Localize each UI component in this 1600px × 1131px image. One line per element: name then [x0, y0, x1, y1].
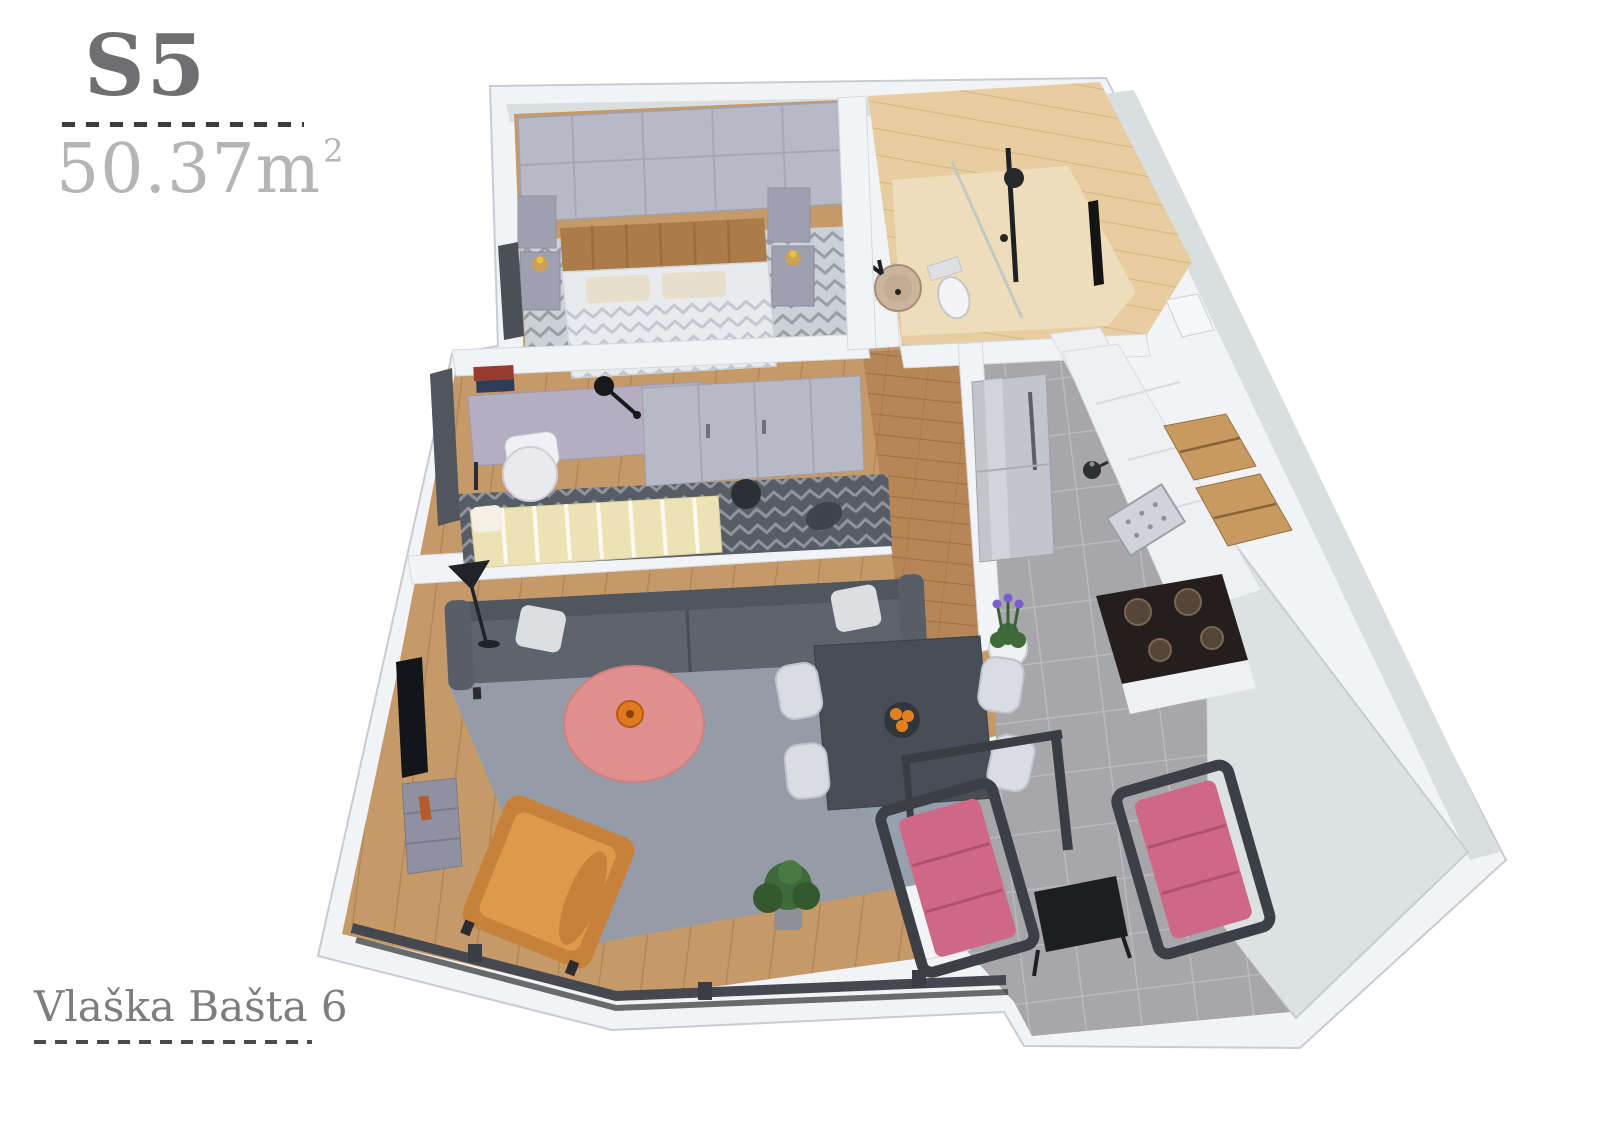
- dining-chair-1: [774, 661, 825, 721]
- area-exponent: 2: [323, 132, 344, 170]
- bed-pillow-right: [662, 271, 727, 299]
- office-pouf: [731, 479, 761, 509]
- area-unit: m: [256, 130, 321, 209]
- tv-stand: [402, 778, 462, 874]
- office-books: [473, 365, 514, 393]
- unit-divider: [62, 122, 304, 127]
- bed-pillow-left: [585, 274, 650, 303]
- fridge: [972, 374, 1054, 562]
- floorplan-page: S5 50.37m2 Vlaška Bašta 6: [0, 0, 1600, 1131]
- bedside-lamp-right: [785, 250, 801, 266]
- address-label: Vlaška Bašta 6: [34, 986, 348, 1028]
- area-label: 50.37m2: [56, 136, 343, 204]
- bedroom-shelf-right: [768, 188, 810, 242]
- unit-label: S5: [84, 24, 207, 108]
- bedside-lamp-left: [532, 256, 548, 272]
- dining-chair-2: [783, 742, 830, 800]
- dining-chair-3: [976, 655, 1025, 714]
- area-value: 50.37: [56, 130, 256, 209]
- office-wardrobe: [642, 376, 864, 486]
- address-divider: [34, 1040, 312, 1044]
- office-chair: [503, 431, 560, 501]
- bedroom-shelf-left: [518, 196, 556, 248]
- coffee-table: [564, 666, 704, 782]
